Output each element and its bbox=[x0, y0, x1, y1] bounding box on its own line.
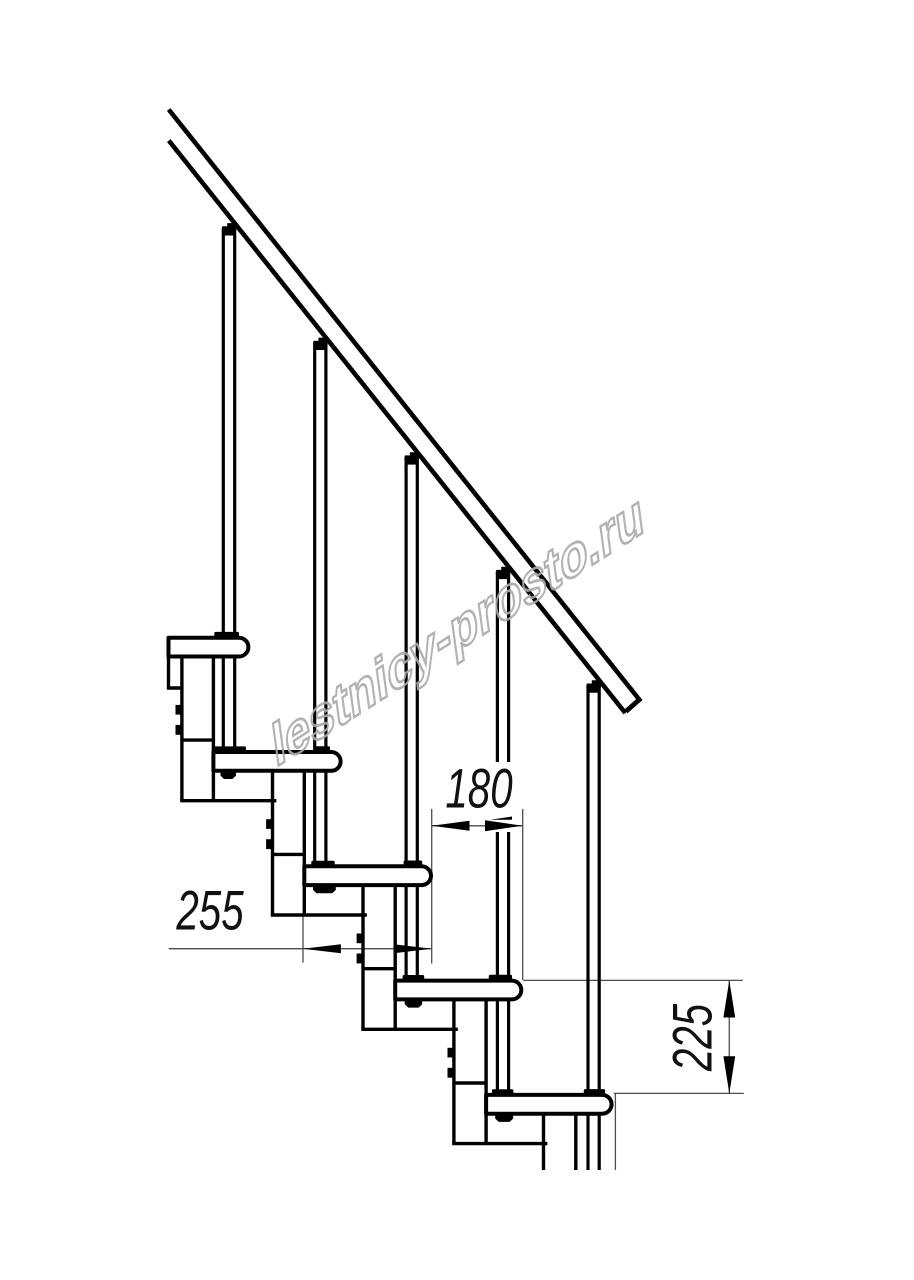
svg-text:225: 225 bbox=[662, 1003, 724, 1072]
svg-text:180: 180 bbox=[445, 758, 512, 820]
svg-text:255: 255 bbox=[176, 880, 245, 942]
